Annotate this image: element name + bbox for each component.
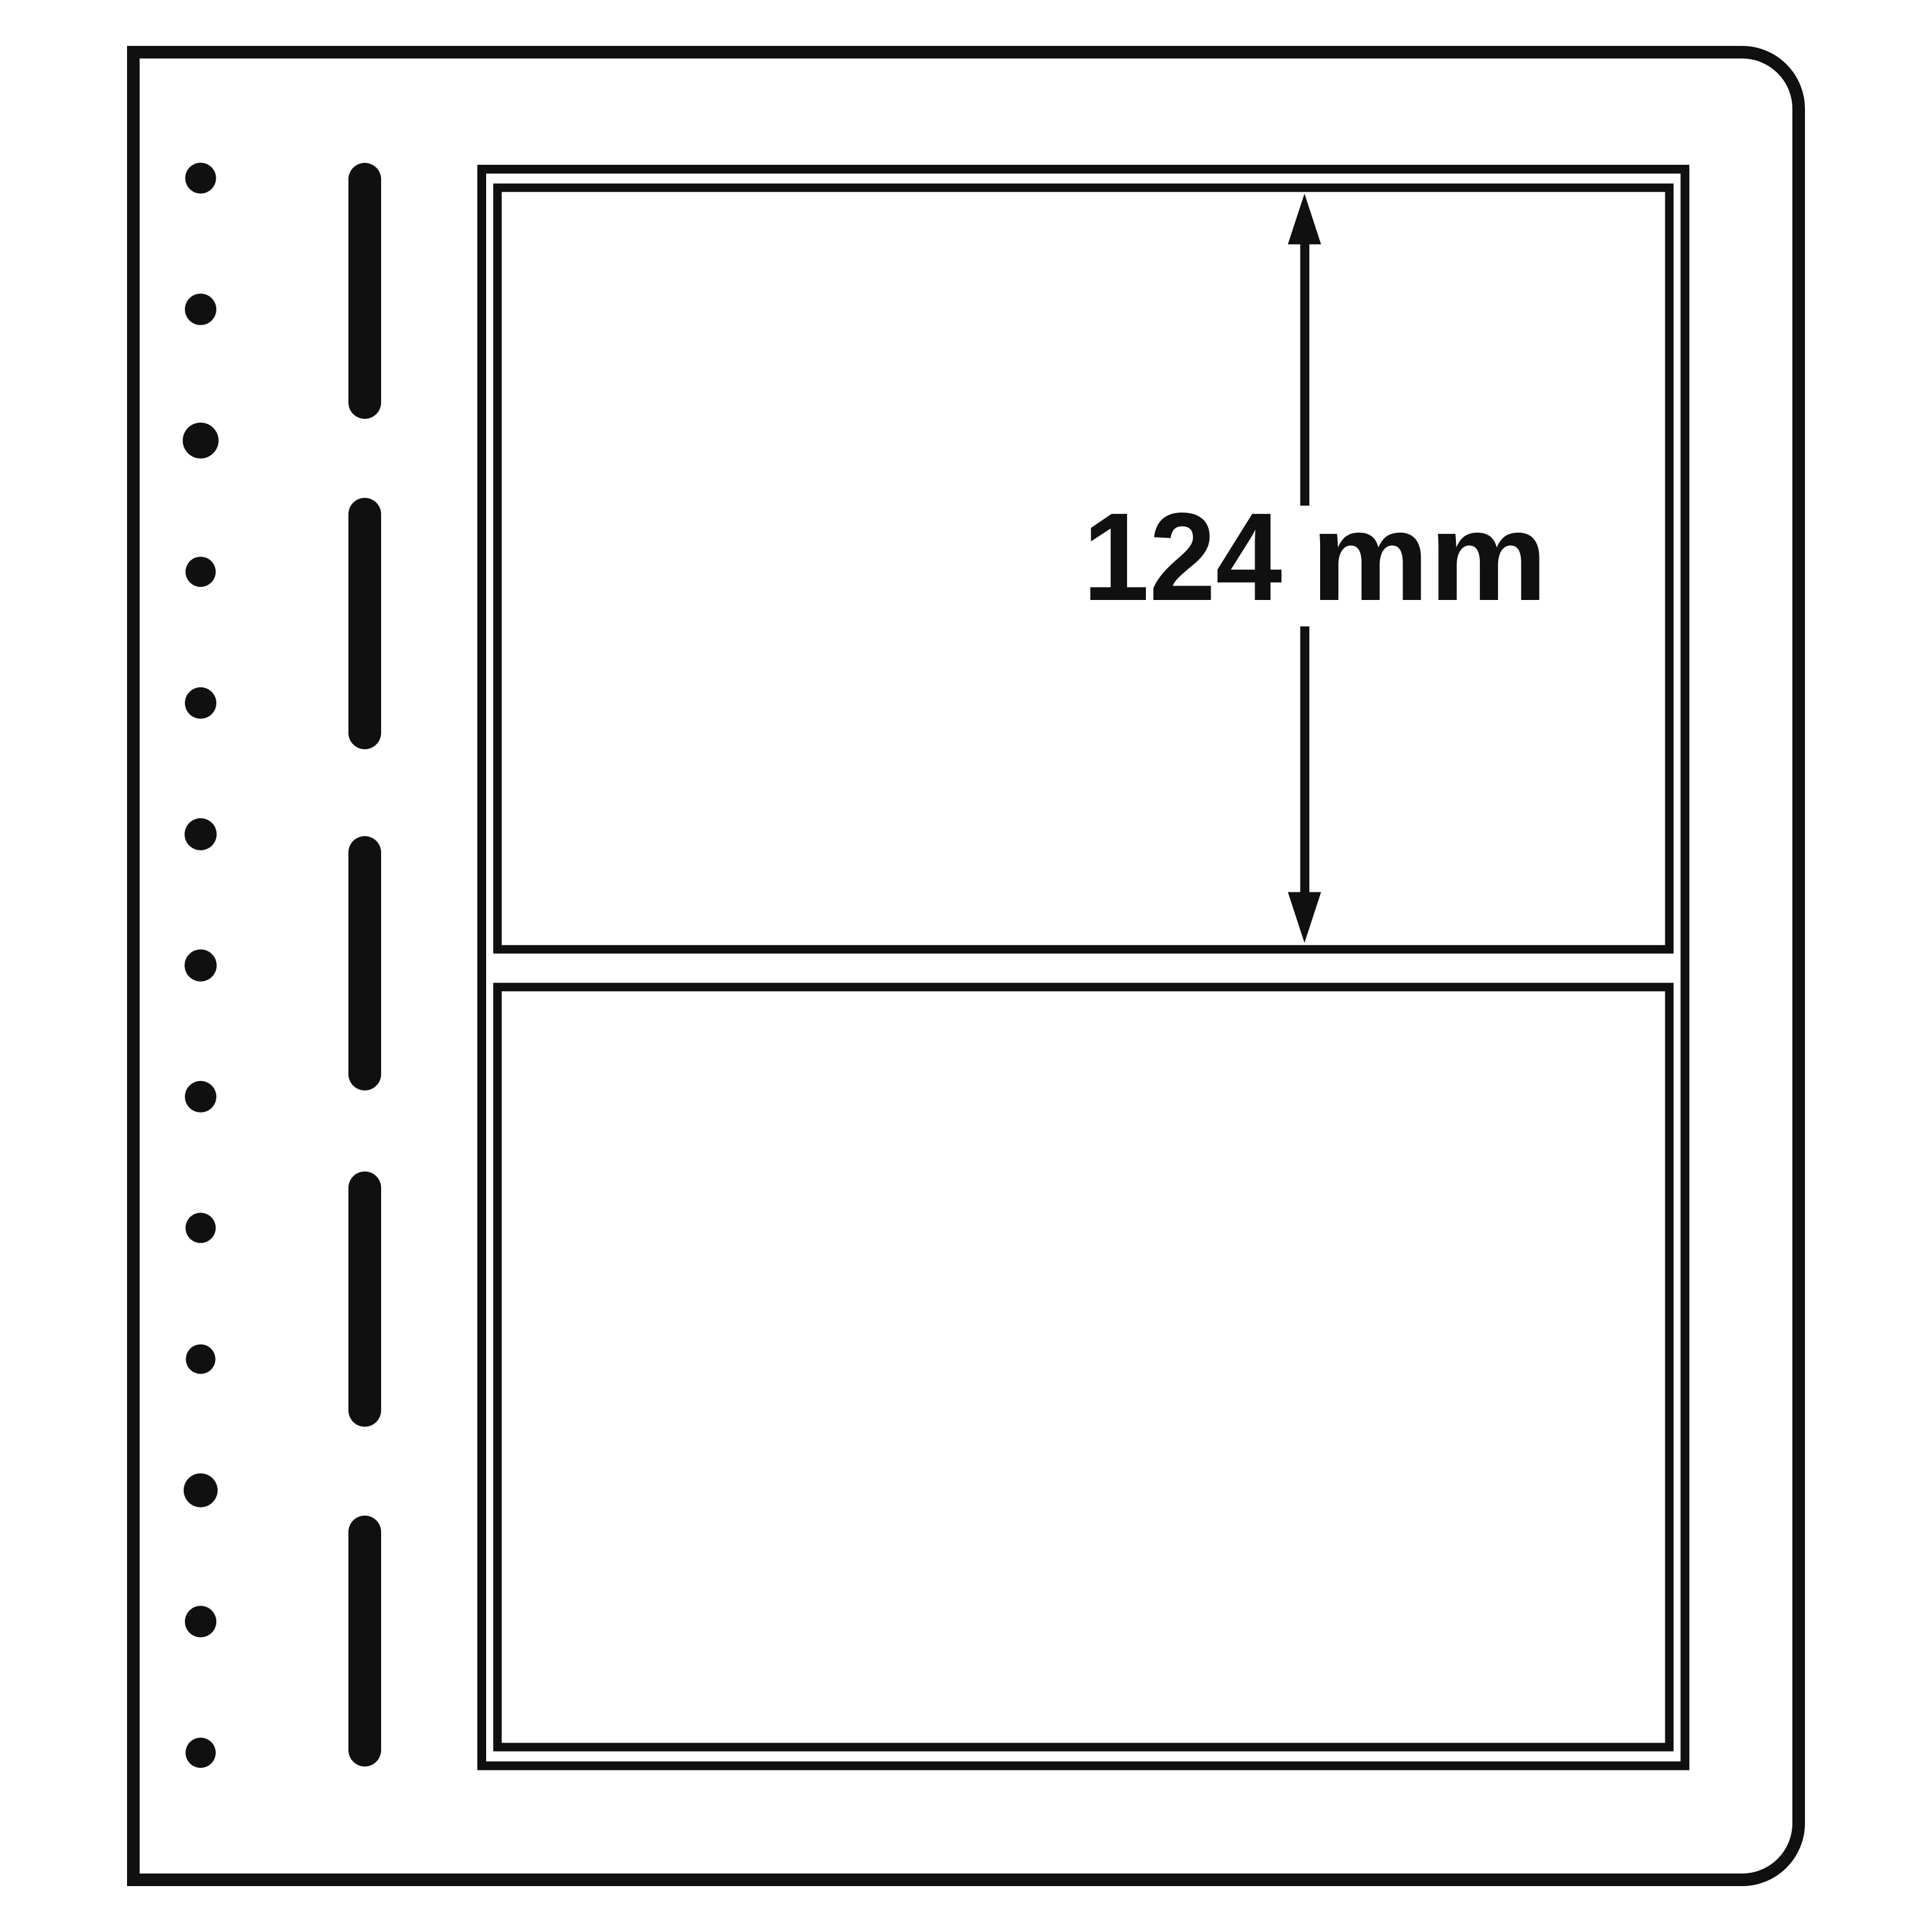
svg-text:mm: mm	[1311, 487, 1547, 627]
svg-text:124: 124	[1083, 487, 1282, 627]
